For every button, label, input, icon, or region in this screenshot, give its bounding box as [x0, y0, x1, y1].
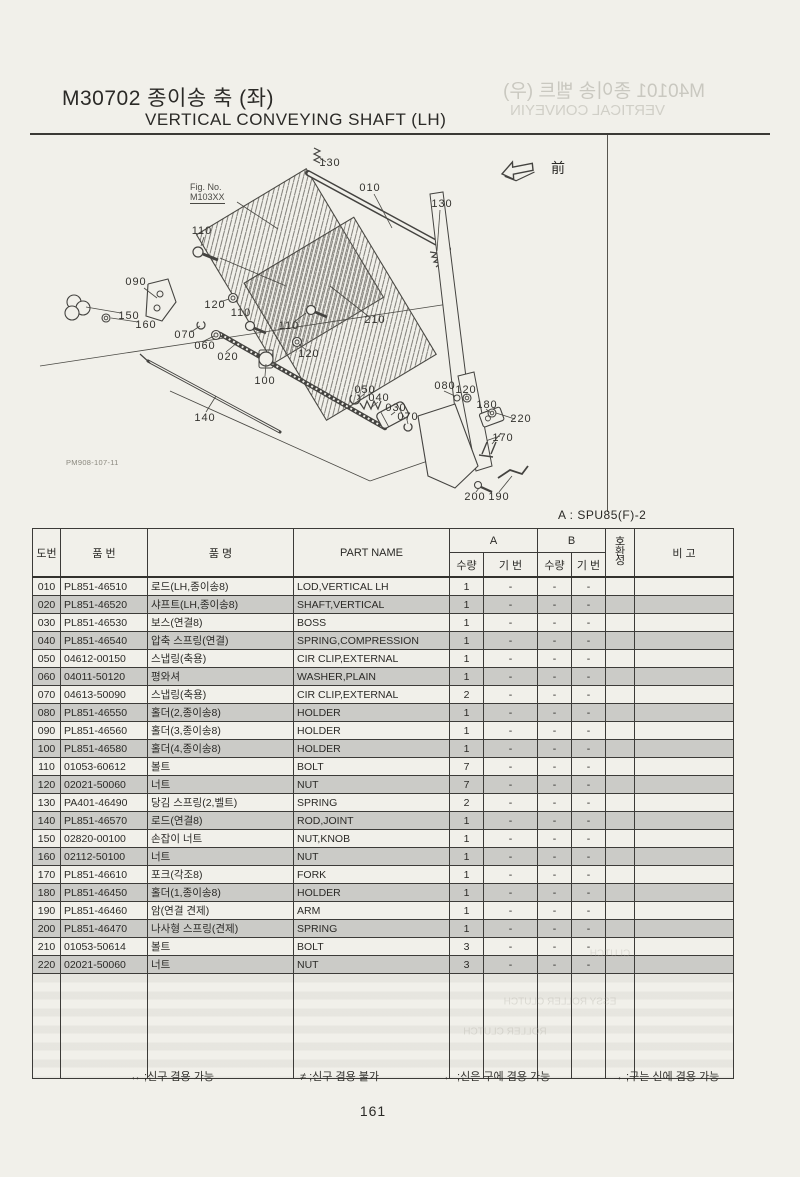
cell-name_kr: 스냅링(축용)	[148, 650, 294, 668]
footer-legend-item: → ;구는 신에 겸용 가능	[612, 1068, 719, 1084]
part-callout: 130	[319, 157, 340, 169]
cell-part_no: PL851-46530	[61, 614, 148, 632]
cell-a_qty: 1	[450, 920, 484, 938]
cell-remark	[635, 920, 734, 938]
cell-b_ref: -	[572, 650, 606, 668]
part-callout: 210	[364, 314, 385, 326]
cell-part_no: 01053-50614	[61, 938, 148, 956]
table-row: 140PL851-46570로드(연결8)ROD,JOINT1---	[33, 812, 734, 830]
cell-a_qty: 1	[450, 614, 484, 632]
cell-a_ref: -	[484, 596, 538, 614]
cell-a_ref: -	[484, 830, 538, 848]
cell-no: 200	[33, 920, 61, 938]
variant-note: A : SPU85(F)-2	[558, 508, 646, 522]
table-row: 05004612-00150스냅링(축용)CIR CLIP,EXTERNAL1-…	[33, 650, 734, 668]
figure-number-value: M103XX	[190, 192, 225, 202]
part-callout: 140	[194, 412, 215, 424]
part-callout: 120	[455, 384, 476, 396]
cell-part_name: BOLT	[294, 938, 450, 956]
cell-part_no: 01053-60612	[61, 758, 148, 776]
col-header-a: A	[450, 529, 538, 553]
part-callout: 060	[194, 340, 215, 352]
cell-part_no: PL851-46610	[61, 866, 148, 884]
cell-name_kr: 볼트	[148, 758, 294, 776]
cell-no: 070	[33, 686, 61, 704]
cell-b_ref: -	[572, 830, 606, 848]
cell-a_ref: -	[484, 794, 538, 812]
part-callout: 070	[397, 411, 418, 423]
table-row: 11001053-60612볼트BOLT7---	[33, 758, 734, 776]
cell-part_no: 02021-50060	[61, 956, 148, 974]
cell-a_ref: -	[484, 704, 538, 722]
cell-b_qty: -	[538, 830, 572, 848]
col-header-name-kr: 품 명	[148, 529, 294, 578]
bleed-through-title: M40101 종이송 벨트 (우)	[503, 76, 705, 103]
cell-no: 170	[33, 866, 61, 884]
cell-name_kr: 압축 스프링(연결)	[148, 632, 294, 650]
cell-a_ref: -	[484, 938, 538, 956]
col-header-b-qty: 수량	[538, 553, 572, 578]
cell-b_qty: -	[538, 866, 572, 884]
cell-b_ref: -	[572, 758, 606, 776]
parts-diagram: Fig. No. M103XX 前 PM908-107-11 130010130…	[30, 136, 608, 512]
col-header-a-ref: 기 번	[484, 553, 538, 578]
table-row: 030PL851-46530보스(연결8)BOSS1---	[33, 614, 734, 632]
cell-a_qty: 1	[450, 632, 484, 650]
cell-b_ref: -	[572, 668, 606, 686]
front-arrow-icon	[498, 158, 544, 186]
part-callout: 120	[298, 348, 319, 360]
cell-a_ref: -	[484, 920, 538, 938]
cell-no: 020	[33, 596, 61, 614]
cell-a_qty: 1	[450, 596, 484, 614]
cell-compat	[606, 577, 635, 596]
cell-name_kr: 평와셔	[148, 668, 294, 686]
cell-a_ref: -	[484, 776, 538, 794]
cell-name_kr: 너트	[148, 956, 294, 974]
cell-b_ref: -	[572, 596, 606, 614]
cell-part_name: BOSS	[294, 614, 450, 632]
cell-no: 050	[33, 650, 61, 668]
cell-name_kr: 암(연결 견제)	[148, 902, 294, 920]
table-row: 16002112-50100너트NUT1---	[33, 848, 734, 866]
col-header-part-no: 품 번	[61, 529, 148, 578]
cell-a_qty: 1	[450, 668, 484, 686]
cell-remark	[635, 632, 734, 650]
cell-part_no: 04612-00150	[61, 650, 148, 668]
cell-b_ref: -	[572, 920, 606, 938]
cell-compat	[606, 668, 635, 686]
cell-part_name: FORK	[294, 866, 450, 884]
cell-no: 110	[33, 758, 61, 776]
col-header-remark: 비 고	[635, 529, 734, 578]
cell-part_name: SHAFT,VERTICAL	[294, 596, 450, 614]
cell-compat	[606, 920, 635, 938]
cell-part_name: HOLDER	[294, 704, 450, 722]
cell-remark	[635, 794, 734, 812]
page-title: M30702 종이송 축 (좌)	[62, 82, 274, 112]
cell-no: 210	[33, 938, 61, 956]
cell-compat	[606, 758, 635, 776]
cell-part_no: 04011-50120	[61, 668, 148, 686]
cell-b_ref: -	[572, 740, 606, 758]
cell-b_ref: -	[572, 686, 606, 704]
cell-compat	[606, 596, 635, 614]
part-callout: 120	[204, 299, 225, 311]
cell-remark	[635, 758, 734, 776]
cell-a_qty: 1	[450, 812, 484, 830]
cell-no: 060	[33, 668, 61, 686]
cell-compat	[606, 902, 635, 920]
cell-name_kr: 홀더(1,종이송8)	[148, 884, 294, 902]
header-rule	[30, 133, 770, 135]
cell-compat	[606, 848, 635, 866]
table-row: 07004613-50090스냅링(축용)CIR CLIP,EXTERNAL2-…	[33, 686, 734, 704]
cell-a_ref: -	[484, 668, 538, 686]
cell-a_qty: 2	[450, 794, 484, 812]
cell-remark	[635, 668, 734, 686]
cell-no: 180	[33, 884, 61, 902]
table-row: 010PL851-46510로드(LH,종이송8)LOD,VERTICAL LH…	[33, 577, 734, 596]
cell-compat	[606, 812, 635, 830]
drawing-code: PM908-107-11	[66, 458, 119, 467]
cell-a_ref: -	[484, 740, 538, 758]
cell-no: 040	[33, 632, 61, 650]
part-callout: 200	[464, 491, 485, 503]
part-callout: 190	[488, 491, 509, 503]
cell-a_qty: 1	[450, 848, 484, 866]
cell-no: 220	[33, 956, 61, 974]
cell-part_no: PL851-46560	[61, 722, 148, 740]
cell-compat	[606, 740, 635, 758]
cell-part_name: HOLDER	[294, 722, 450, 740]
page-subtitle: VERTICAL CONVEYING SHAFT (LH)	[145, 110, 446, 130]
cell-b_ref: -	[572, 812, 606, 830]
cell-name_kr: 손잡이 너트	[148, 830, 294, 848]
cell-remark	[635, 902, 734, 920]
footer-legend-item: ← ;신은 구에 겸용 가능	[443, 1068, 550, 1084]
cell-no: 080	[33, 704, 61, 722]
cell-name_kr: 홀더(3,종이송8)	[148, 722, 294, 740]
cell-b_qty: -	[538, 668, 572, 686]
cell-part_name: HOLDER	[294, 740, 450, 758]
cell-remark	[635, 614, 734, 632]
cell-remark	[635, 830, 734, 848]
diagram-line-art	[30, 136, 608, 512]
cell-a_ref: -	[484, 722, 538, 740]
cell-remark	[635, 938, 734, 956]
col-header-compat: 호 환 성	[606, 529, 635, 578]
cell-remark	[635, 776, 734, 794]
parts-table: 도번 품 번 품 명 PART NAME A B 호 환 성 비 고 수량 기 …	[32, 528, 734, 1079]
cell-remark	[635, 650, 734, 668]
cell-a_qty: 2	[450, 686, 484, 704]
cell-remark	[635, 884, 734, 902]
table-row: 15002820-00100손잡이 너트NUT,KNOB1---	[33, 830, 734, 848]
cell-b_ref: -	[572, 884, 606, 902]
cell-b_ref: -	[572, 848, 606, 866]
cell-b_ref: -	[572, 776, 606, 794]
cell-a_qty: 1	[450, 902, 484, 920]
part-callout: 160	[135, 319, 156, 331]
figure-number: Fig. No. M103XX	[190, 182, 225, 204]
part-callout: 010	[359, 182, 380, 194]
cell-name_kr: 보스(연결8)	[148, 614, 294, 632]
cell-name_kr: 홀더(4,종이송8)	[148, 740, 294, 758]
cell-part_name: SPRING,COMPRESSION	[294, 632, 450, 650]
cell-b_qty: -	[538, 758, 572, 776]
table-row: 080PL851-46550홀더(2,종이송8)HOLDER1---	[33, 704, 734, 722]
cell-b_ref: -	[572, 632, 606, 650]
cell-part_name: BOLT	[294, 758, 450, 776]
cell-part_name: NUT	[294, 848, 450, 866]
cell-b_qty: -	[538, 614, 572, 632]
cell-a_ref: -	[484, 884, 538, 902]
cell-a_ref: -	[484, 650, 538, 668]
cell-name_kr: 당김 스프링(2,벨트)	[148, 794, 294, 812]
cell-part_no: PL851-46510	[61, 577, 148, 596]
cell-b_qty: -	[538, 776, 572, 794]
cell-a_qty: 1	[450, 866, 484, 884]
cell-compat	[606, 776, 635, 794]
cell-b_qty: -	[538, 920, 572, 938]
compat-char: 성	[606, 557, 634, 567]
cell-b_qty: -	[538, 722, 572, 740]
cell-a_qty: 3	[450, 956, 484, 974]
cell-no: 190	[33, 902, 61, 920]
cell-compat	[606, 794, 635, 812]
cell-part_no: PL851-46520	[61, 596, 148, 614]
cell-b_ref: -	[572, 722, 606, 740]
cell-name_kr: 홀더(2,종이송8)	[148, 704, 294, 722]
cell-b_qty: -	[538, 740, 572, 758]
cell-b_ref: -	[572, 704, 606, 722]
bleed-through-text: ROLLER CLUTCH	[463, 1027, 546, 1038]
cell-b_qty: -	[538, 686, 572, 704]
cell-part_name: CIR CLIP,EXTERNAL	[294, 650, 450, 668]
cell-compat	[606, 650, 635, 668]
part-callout: 180	[476, 399, 497, 411]
cell-name_kr: 나사형 스프링(견제)	[148, 920, 294, 938]
cell-part_no: PL851-46580	[61, 740, 148, 758]
cell-remark	[635, 866, 734, 884]
part-callout: 020	[217, 351, 238, 363]
cell-no: 150	[33, 830, 61, 848]
cell-a_qty: 7	[450, 776, 484, 794]
cell-b_qty: -	[538, 938, 572, 956]
cell-b_qty: -	[538, 848, 572, 866]
table-row: 090PL851-46560홀더(3,종이송8)HOLDER1---	[33, 722, 734, 740]
cell-remark	[635, 704, 734, 722]
front-label: 前	[551, 158, 565, 178]
cell-part_no: 02820-00100	[61, 830, 148, 848]
empty-table-area	[33, 974, 734, 1079]
cell-no: 090	[33, 722, 61, 740]
part-callout: 110	[192, 225, 213, 237]
cell-a_ref: -	[484, 866, 538, 884]
cell-b_qty: -	[538, 650, 572, 668]
cell-compat	[606, 830, 635, 848]
table-row: 12002021-50060너트NUT7---	[33, 776, 734, 794]
cell-part_no: 04613-50090	[61, 686, 148, 704]
cell-name_kr: 로드(LH,종이송8)	[148, 577, 294, 596]
cell-a_ref: -	[484, 848, 538, 866]
cell-b_qty: -	[538, 577, 572, 596]
figure-number-label: Fig. No.	[190, 182, 225, 192]
footer-legend-item: ↔ ;신구 겸용 가능	[130, 1068, 214, 1084]
col-header-a-qty: 수량	[450, 553, 484, 578]
cell-part_name: ROD,JOINT	[294, 812, 450, 830]
part-callout: 080	[434, 380, 455, 392]
cell-name_kr: 너트	[148, 848, 294, 866]
cell-compat	[606, 632, 635, 650]
cell-b_qty: -	[538, 812, 572, 830]
col-header-b-ref: 기 번	[572, 553, 606, 578]
cell-part_name: ARM	[294, 902, 450, 920]
cell-part_no: PL851-46570	[61, 812, 148, 830]
part-callout: 130	[431, 198, 452, 210]
cell-compat	[606, 614, 635, 632]
cell-b_ref: -	[572, 866, 606, 884]
cell-part_no: 02112-50100	[61, 848, 148, 866]
cell-remark	[635, 956, 734, 974]
cell-part_no: 02021-50060	[61, 776, 148, 794]
cell-part_name: LOD,VERTICAL LH	[294, 577, 450, 596]
cell-remark	[635, 596, 734, 614]
cell-a_qty: 7	[450, 758, 484, 776]
parts-table-wrap: 도번 품 번 품 명 PART NAME A B 호 환 성 비 고 수량 기 …	[32, 528, 734, 1079]
cell-part_no: PL851-46540	[61, 632, 148, 650]
part-callout: 100	[254, 375, 275, 387]
cell-part_name: CIR CLIP,EXTERNAL	[294, 686, 450, 704]
table-row: 020PL851-46520샤프트(LH,종이송8)SHAFT,VERTICAL…	[33, 596, 734, 614]
cell-name_kr: 스냅링(축용)	[148, 686, 294, 704]
cell-remark	[635, 686, 734, 704]
cell-name_kr: 샤프트(LH,종이송8)	[148, 596, 294, 614]
cell-no: 160	[33, 848, 61, 866]
cell-b_ref: -	[572, 614, 606, 632]
col-header-b: B	[538, 529, 606, 553]
cell-a_qty: 3	[450, 938, 484, 956]
cell-part_no: PL851-46550	[61, 704, 148, 722]
cell-b_qty: -	[538, 632, 572, 650]
col-header-part-name: PART NAME	[294, 529, 450, 578]
table-row: 130PA401-46490당김 스프링(2,벨트)SPRING2---	[33, 794, 734, 812]
part-callout: 090	[125, 276, 146, 288]
cell-part_name: NUT	[294, 956, 450, 974]
part-callout: 070	[174, 329, 195, 341]
cell-a_qty: 1	[450, 577, 484, 596]
cell-remark	[635, 577, 734, 596]
cell-part_no: PA401-46490	[61, 794, 148, 812]
cell-a_ref: -	[484, 614, 538, 632]
cell-part_name: HOLDER	[294, 884, 450, 902]
part-callout: 110	[279, 320, 300, 332]
cell-part_no: PL851-46460	[61, 902, 148, 920]
cell-part_name: SPRING	[294, 794, 450, 812]
footer-legend-item: ≠ ;신구 겸용 불가	[300, 1068, 379, 1084]
cell-compat	[606, 704, 635, 722]
cell-part_name: NUT,KNOB	[294, 830, 450, 848]
cell-a_ref: -	[484, 632, 538, 650]
cell-part_name: WASHER,PLAIN	[294, 668, 450, 686]
cell-b_qty: -	[538, 704, 572, 722]
cell-a_qty: 1	[450, 830, 484, 848]
cell-no: 030	[33, 614, 61, 632]
table-row: 190PL851-46460암(연결 견제)ARM1---	[33, 902, 734, 920]
cell-remark	[635, 722, 734, 740]
part-callout: 220	[510, 413, 531, 425]
cell-b_qty: -	[538, 956, 572, 974]
cell-part_no: PL851-46470	[61, 920, 148, 938]
cell-no: 120	[33, 776, 61, 794]
table-row: 180PL851-46450홀더(1,종이송8)HOLDER1---	[33, 884, 734, 902]
cell-a_qty: 1	[450, 650, 484, 668]
table-row: 200PL851-46470나사형 스프링(견제)SPRING1---	[33, 920, 734, 938]
cell-a_ref: -	[484, 686, 538, 704]
cell-name_kr: 볼트	[148, 938, 294, 956]
cell-a_qty: 1	[450, 740, 484, 758]
part-callout: 170	[492, 432, 513, 444]
page-number: 161	[0, 1103, 746, 1119]
bleed-through-text: ESSY ROLLER CLUTCH	[504, 997, 617, 1008]
cell-a_ref: -	[484, 758, 538, 776]
cell-part_name: SPRING	[294, 920, 450, 938]
cell-name_kr: 로드(연결8)	[148, 812, 294, 830]
cell-b_ref: -	[572, 902, 606, 920]
cell-b_qty: -	[538, 884, 572, 902]
table-row: 100PL851-46580홀더(4,종이송8)HOLDER1---	[33, 740, 734, 758]
cell-a_ref: -	[484, 812, 538, 830]
cell-b_qty: -	[538, 794, 572, 812]
cell-a_ref: -	[484, 577, 538, 596]
part-callout: 110	[231, 307, 252, 319]
cell-compat	[606, 722, 635, 740]
cell-no: 130	[33, 794, 61, 812]
cell-remark	[635, 848, 734, 866]
table-row: 040PL851-46540압축 스프링(연결)SPRING,COMPRESSI…	[33, 632, 734, 650]
table-row: 06004011-50120평와셔WASHER,PLAIN1---	[33, 668, 734, 686]
cell-no: 140	[33, 812, 61, 830]
cell-compat	[606, 866, 635, 884]
cell-compat	[606, 686, 635, 704]
cell-a_qty: 1	[450, 722, 484, 740]
bleed-through-text: CLUTCH	[590, 949, 631, 960]
cell-remark	[635, 812, 734, 830]
direction-marker: 前	[498, 158, 568, 188]
cell-a_ref: -	[484, 956, 538, 974]
cell-a_ref: -	[484, 902, 538, 920]
table-row: 170PL851-46610포크(각조8)FORK1---	[33, 866, 734, 884]
col-header-no: 도번	[33, 529, 61, 578]
cell-name_kr: 너트	[148, 776, 294, 794]
cell-no: 100	[33, 740, 61, 758]
cell-remark	[635, 740, 734, 758]
bleed-through-subtitle: VERTICAL CONVEYIN	[510, 102, 665, 119]
cell-compat	[606, 884, 635, 902]
cell-b_ref: -	[572, 577, 606, 596]
cell-b_qty: -	[538, 902, 572, 920]
cell-a_qty: 1	[450, 884, 484, 902]
cell-a_qty: 1	[450, 704, 484, 722]
cell-part_no: PL851-46450	[61, 884, 148, 902]
cell-name_kr: 포크(각조8)	[148, 866, 294, 884]
cell-b_qty: -	[538, 596, 572, 614]
cell-no: 010	[33, 577, 61, 596]
cell-part_name: NUT	[294, 776, 450, 794]
cell-b_ref: -	[572, 794, 606, 812]
